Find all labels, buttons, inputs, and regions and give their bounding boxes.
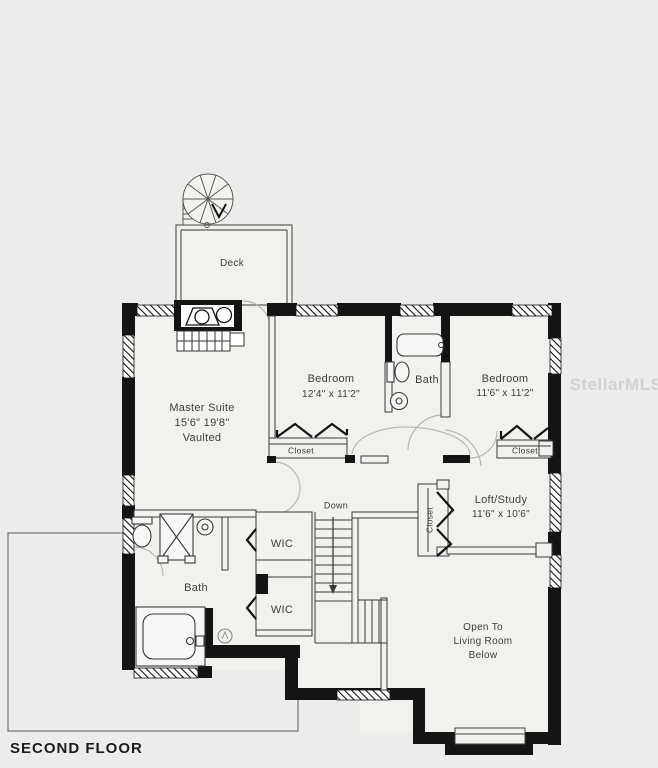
bedroom2-label: Bedroom	[482, 373, 529, 387]
watermark: StellarMLS	[570, 375, 658, 395]
page-title: SECOND FLOOR	[10, 740, 143, 757]
loft-label: Loft/Study	[475, 494, 528, 508]
master-suite-label: Master Suite	[169, 402, 234, 416]
closet-loft-label: Closet	[425, 507, 436, 533]
bath-lower-label: Bath	[184, 582, 208, 596]
bedroom1-label: Bedroom	[308, 373, 355, 387]
closet-bedroom2-label: Closet	[512, 446, 538, 457]
bedroom1-dims: 12'4" x 11'2"	[302, 389, 360, 402]
bay-window-seat	[455, 728, 525, 744]
wic1-label: WIC	[271, 538, 293, 552]
floor-plan-page: Deck Master Suite 15'6" 19'8" Vaulted Be…	[0, 0, 658, 768]
bedroom2-dims: 11'6" x 11'2"	[476, 388, 533, 401]
deck-label: Deck	[220, 258, 244, 271]
open-below-line3: Below	[469, 650, 498, 663]
open-below-line1: Open To	[463, 622, 503, 635]
open-below-line2: Living Room	[454, 636, 513, 649]
loft-dims: 11'6" x 10'6"	[472, 509, 530, 522]
closet-bedroom1-label: Closet	[288, 446, 314, 457]
bath-upper-label: Bath	[415, 374, 439, 388]
spiral-staircase	[183, 174, 233, 228]
master-suite-note: Vaulted	[183, 432, 222, 446]
stairs-down-label: Down	[324, 500, 348, 511]
master-suite-dims: 15'6" 19'8"	[174, 417, 229, 431]
wet-bar	[174, 300, 244, 351]
wic2-label: WIC	[271, 604, 293, 618]
